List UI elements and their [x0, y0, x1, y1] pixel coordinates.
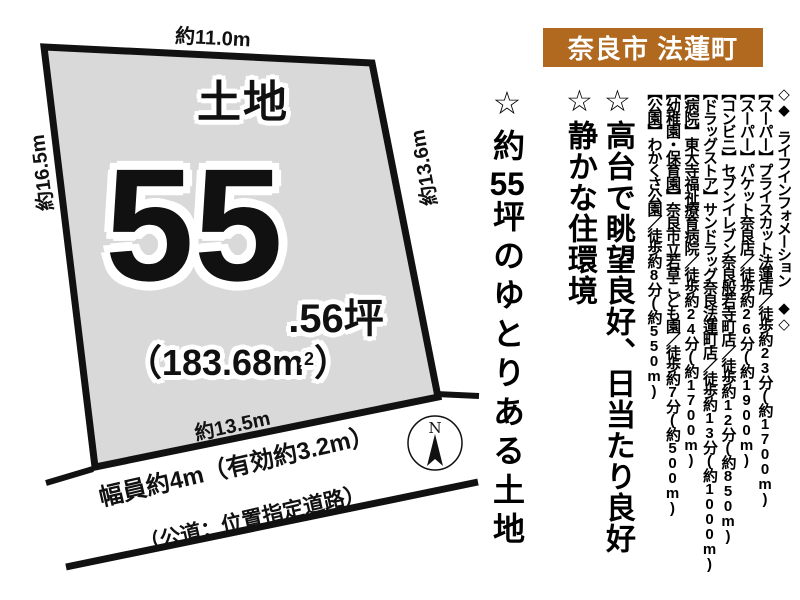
- catchphrase-item-size: ☆約55坪のゆとりある土地: [488, 84, 526, 584]
- dim-top-label: 約11.0m: [174, 20, 251, 53]
- life-info-item-kindergarten: 【幼稚園・保育園】奈良市立若草こども園／徒歩約7分(約500m): [663, 85, 682, 600]
- catchphrase-item-quiet: ☆静かな住環境: [560, 84, 598, 584]
- area-sqm-pre: （183.68m: [126, 342, 304, 383]
- catchphrase-list: ☆高台で眺望良好、日当たり良好 ☆静かな住環境 ☆約55坪のゆとりある土地: [488, 84, 636, 584]
- life-info-item-supermarket-1: 【スーパー】プライスカット法蓮店／徒歩約23分(約1700m): [755, 85, 774, 600]
- compass: N: [408, 416, 462, 470]
- area-sqm-post: ）: [314, 342, 350, 383]
- road-edge-right-extension: [436, 394, 479, 396]
- plot-type-label: 土地: [197, 66, 289, 130]
- life-info-panel: ◇◆ ライフインフォメーション ◆◇ 【スーパー】プライスカット法蓮店／徒歩約2…: [644, 85, 792, 600]
- area-sqm-sup: 2: [304, 349, 314, 369]
- life-info-item-park: 【公園】わかくさ公園／徒歩約8分(約550m): [644, 85, 663, 600]
- flyer-page: { "header": { "title": "奈良市 法蓮町" }, "col…: [0, 0, 800, 600]
- road-edge-left-extension: [46, 469, 93, 483]
- catchphrase-item-view: ☆高台で眺望良好、日当たり良好: [598, 84, 636, 584]
- area-tsubo-main: 55: [105, 145, 283, 305]
- life-info-item-drugstore: 【ドラッグストア】サンドラッグ奈良法蓮町店／徒歩約13分(約1000m): [700, 85, 719, 600]
- life-info-item-supermarket-2: 【スーパー】パケット奈良店／徒歩約26分(約1900m): [737, 85, 756, 600]
- catchphrase-size-pre: ☆約: [489, 84, 525, 168]
- life-info-item-hospital: 【病院】東大寺福祉療育病院／徒歩約24分(約1700m): [681, 85, 700, 600]
- life-info-item-convenience: 【コンビニ】セブンイレブン奈良般若寺町店／徒歩約12分(約850m): [718, 85, 737, 600]
- location-banner: 奈良市 法蓮町: [543, 28, 763, 67]
- life-info-heading: ◇◆ ライフインフォメーション ◆◇: [774, 85, 793, 600]
- catchphrase-size-number: 55: [489, 168, 525, 200]
- catchphrase-size-post: 坪のゆとりある土地: [489, 200, 525, 551]
- area-sqm-label: （183.68m2）: [126, 334, 350, 386]
